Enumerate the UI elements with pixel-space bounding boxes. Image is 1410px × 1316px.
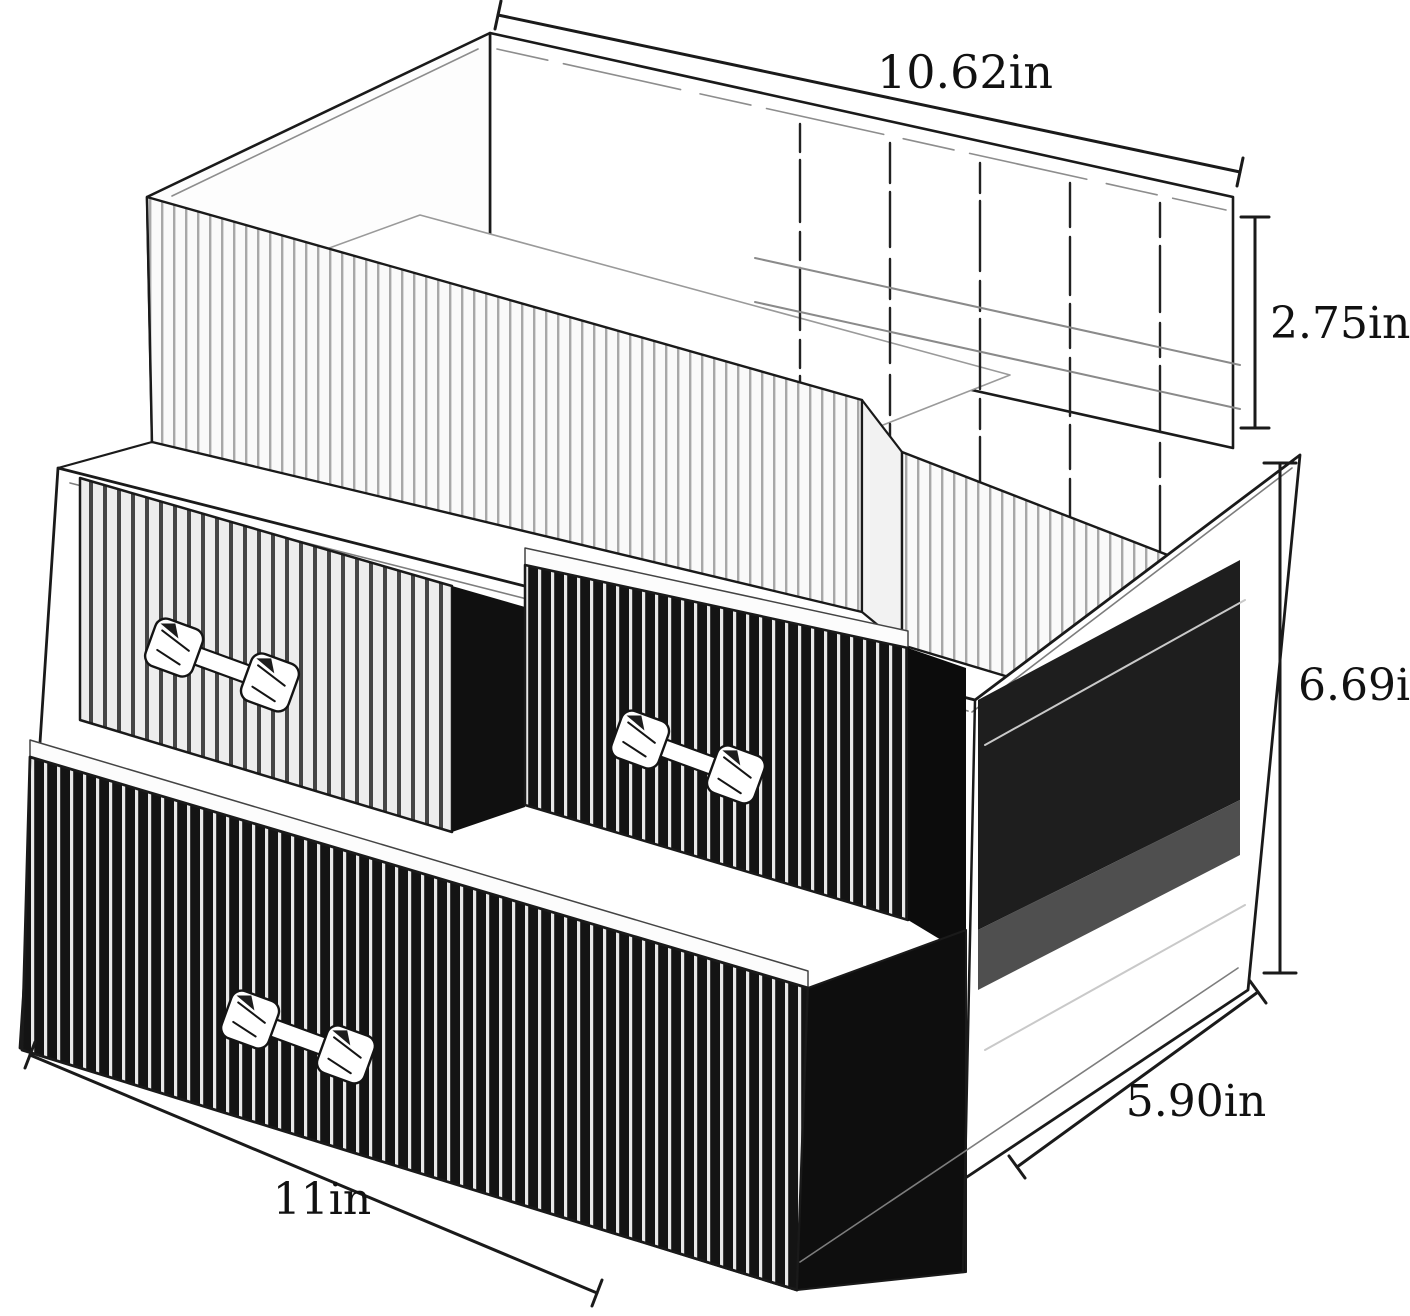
drawer-bottom-side-shadow [797, 930, 966, 1290]
dim-label-top-width: 10.62in [877, 45, 1053, 99]
dim-label-depth: 5.90in [1126, 1076, 1266, 1127]
dim-label-top-height: 2.75in [1270, 298, 1410, 349]
right-cavity [908, 648, 966, 955]
product-dimension-diagram: 10.62in 2.75in 6.69in 5.90in 11in [0, 0, 1410, 1316]
dim-label-bottom-height: 6.69in [1298, 660, 1410, 711]
tray-corner-bevel [862, 400, 902, 645]
middle-cavity [452, 586, 525, 832]
dim-label-bottom-width: 11in [273, 1174, 371, 1225]
organizer-diagram-svg: 10.62in 2.75in 6.69in 5.90in 11in [0, 0, 1410, 1316]
dim-top-height [1241, 217, 1269, 428]
